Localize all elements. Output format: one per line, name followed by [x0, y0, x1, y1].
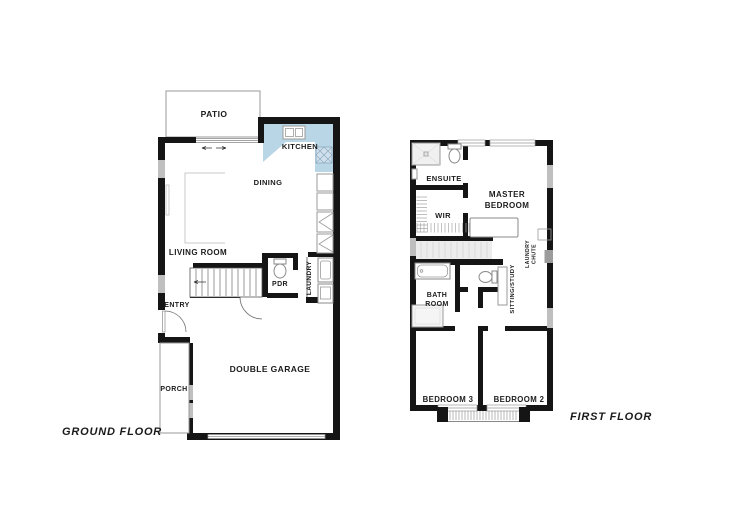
label-kitchen: KITCHEN: [282, 142, 318, 151]
first-floor-title: FIRST FLOOR: [570, 411, 652, 423]
label-living-room: LIVING ROOM: [169, 248, 227, 257]
desk-icon: [498, 267, 507, 305]
label-pdr: PDR: [272, 281, 288, 288]
floorplan-canvas: PATIO KITCHEN DINING LIVING ROOM ENTRY P…: [0, 0, 750, 531]
label-patio: PATIO: [201, 109, 228, 119]
label-porch: PORCH: [160, 386, 187, 393]
bath-shower-icon: [412, 305, 443, 327]
ensuite-shower-icon: [412, 143, 440, 165]
ground-floor-title: GROUND FLOOR: [62, 426, 162, 438]
entry-door: [163, 311, 187, 332]
ensuite-vanity-icon: [412, 169, 417, 179]
garage-internal-door: [240, 297, 262, 319]
sink-icon: [283, 126, 305, 139]
label-master-bedroom: MASTER BEDROOM: [485, 190, 530, 210]
svg-text:BEDROOM: BEDROOM: [485, 201, 530, 210]
label-laundry-chute: LAUNDRY CHUTE: [525, 240, 538, 268]
pantry-cabinets: [317, 174, 333, 253]
living-room-furniture: [166, 173, 225, 243]
label-ensuite: ENSUITE: [426, 174, 461, 183]
svg-text:BATH: BATH: [427, 292, 448, 299]
label-bedroom3: BEDROOM 3: [423, 395, 474, 404]
label-dining: DINING: [254, 178, 283, 187]
label-wir: WIR: [435, 211, 451, 220]
wc-toilet-icon: [479, 271, 497, 283]
ground-floor-svg: PATIO KITCHEN DINING LIVING ROOM ENTRY P…: [150, 85, 345, 445]
label-bath-room: BATH ROOM: [425, 292, 448, 308]
ensuite-toilet-icon: [448, 144, 461, 163]
ground-floor-plan: PATIO KITCHEN DINING LIVING ROOM ENTRY P…: [150, 85, 345, 450]
label-laundry: LAUNDRY: [306, 261, 313, 296]
stair-void: [416, 241, 492, 259]
washer-icon: [318, 258, 333, 282]
label-entry: ENTRY: [164, 302, 189, 309]
first-floor-svg: ENSUITE WIR MASTER BEDROOM LAUNDRY CHUTE…: [395, 125, 555, 425]
pdr-toilet-icon: [274, 259, 286, 278]
svg-text:LAUNDRY: LAUNDRY: [525, 240, 531, 268]
svg-text:MASTER: MASTER: [489, 190, 525, 199]
laundry-tub-icon: [318, 284, 333, 303]
bed-icon: [470, 218, 518, 237]
garage-door: [208, 435, 325, 439]
svg-text:ROOM: ROOM: [425, 301, 448, 308]
first-floor-plan: ENSUITE WIR MASTER BEDROOM LAUNDRY CHUTE…: [395, 125, 555, 430]
label-sitting-study: SITTING/STUDY: [510, 264, 516, 313]
stairs: [190, 268, 262, 297]
sliding-door: [196, 139, 258, 150]
svg-text:CHUTE: CHUTE: [532, 244, 538, 264]
bathtub-icon: [415, 263, 450, 279]
label-double-garage: DOUBLE GARAGE: [230, 364, 311, 374]
label-bedroom2: BEDROOM 2: [494, 395, 545, 404]
cooktop-icon: [316, 147, 332, 163]
